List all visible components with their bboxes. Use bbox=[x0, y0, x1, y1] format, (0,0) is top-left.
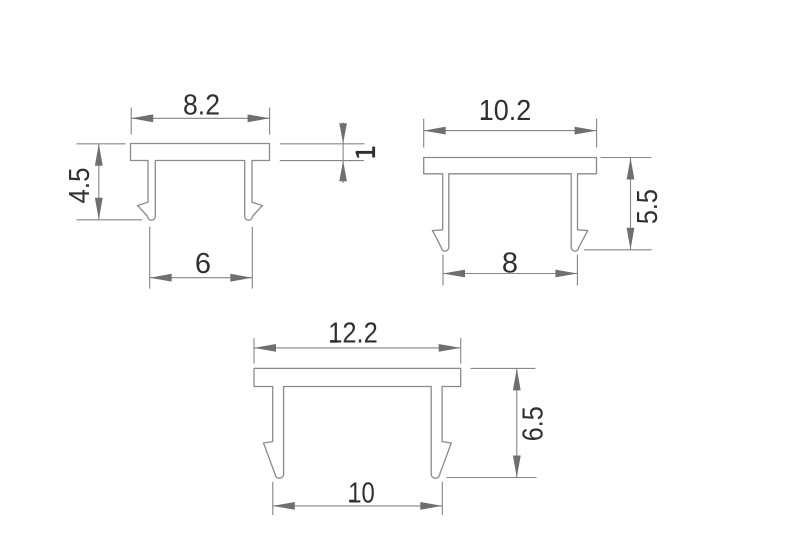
svg-text:12.2: 12.2 bbox=[328, 318, 378, 350]
svg-text:6.5: 6.5 bbox=[518, 406, 550, 441]
svg-text:5.5: 5.5 bbox=[632, 189, 664, 224]
svg-text:10.2: 10.2 bbox=[479, 95, 532, 127]
svg-text:8.2: 8.2 bbox=[183, 90, 220, 122]
svg-text:6: 6 bbox=[195, 248, 211, 280]
svg-text:8: 8 bbox=[502, 247, 518, 279]
svg-text:10: 10 bbox=[348, 477, 375, 509]
svg-text:4.5: 4.5 bbox=[64, 168, 96, 204]
